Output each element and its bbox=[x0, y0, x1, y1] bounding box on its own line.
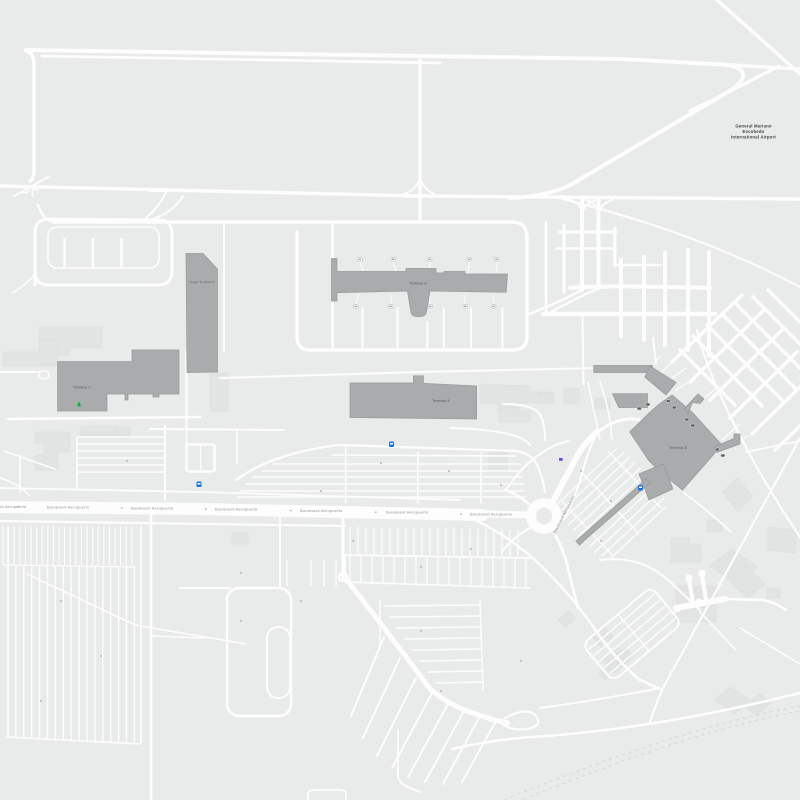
svg-text:Boulevard Aeropuerto: Boulevard Aeropuerto bbox=[131, 506, 174, 511]
svg-text:◄: ◄ bbox=[120, 506, 123, 510]
svg-text:Escobedo: Escobedo bbox=[743, 129, 765, 134]
svg-text:Terminal A: Terminal A bbox=[432, 399, 450, 403]
svg-text:Boulevard Aeropuerto: Boulevard Aeropuerto bbox=[470, 511, 513, 516]
svg-text:Boulevard Aeropuerto: Boulevard Aeropuerto bbox=[300, 508, 343, 513]
svg-text:◄: ◄ bbox=[16, 505, 19, 509]
svg-text:Terminal C: Terminal C bbox=[73, 386, 91, 390]
svg-text:Terminal B: Terminal B bbox=[669, 446, 687, 450]
svg-text:Boulevard Aeropuerto: Boulevard Aeropuerto bbox=[215, 507, 258, 512]
svg-text:◄: ◄ bbox=[289, 509, 292, 513]
svg-text:General Mariano: General Mariano bbox=[735, 124, 772, 129]
svg-text:Boulevard Aeropuerto: Boulevard Aeropuerto bbox=[47, 505, 90, 510]
svg-text:◄: ◄ bbox=[459, 512, 462, 516]
svg-text:◄: ◄ bbox=[374, 510, 377, 514]
svg-text:International Airport: International Airport bbox=[731, 135, 776, 140]
svg-text:Boulevard Aeropuerto: Boulevard Aeropuerto bbox=[386, 510, 429, 515]
svg-text:◄: ◄ bbox=[204, 507, 207, 511]
svg-text:Finger Terminal A: Finger Terminal A bbox=[190, 280, 215, 284]
svg-text:Boulevard Aeropuerto: Boulevard Aeropuerto bbox=[0, 504, 27, 509]
svg-text:Terminal A: Terminal A bbox=[409, 282, 427, 286]
